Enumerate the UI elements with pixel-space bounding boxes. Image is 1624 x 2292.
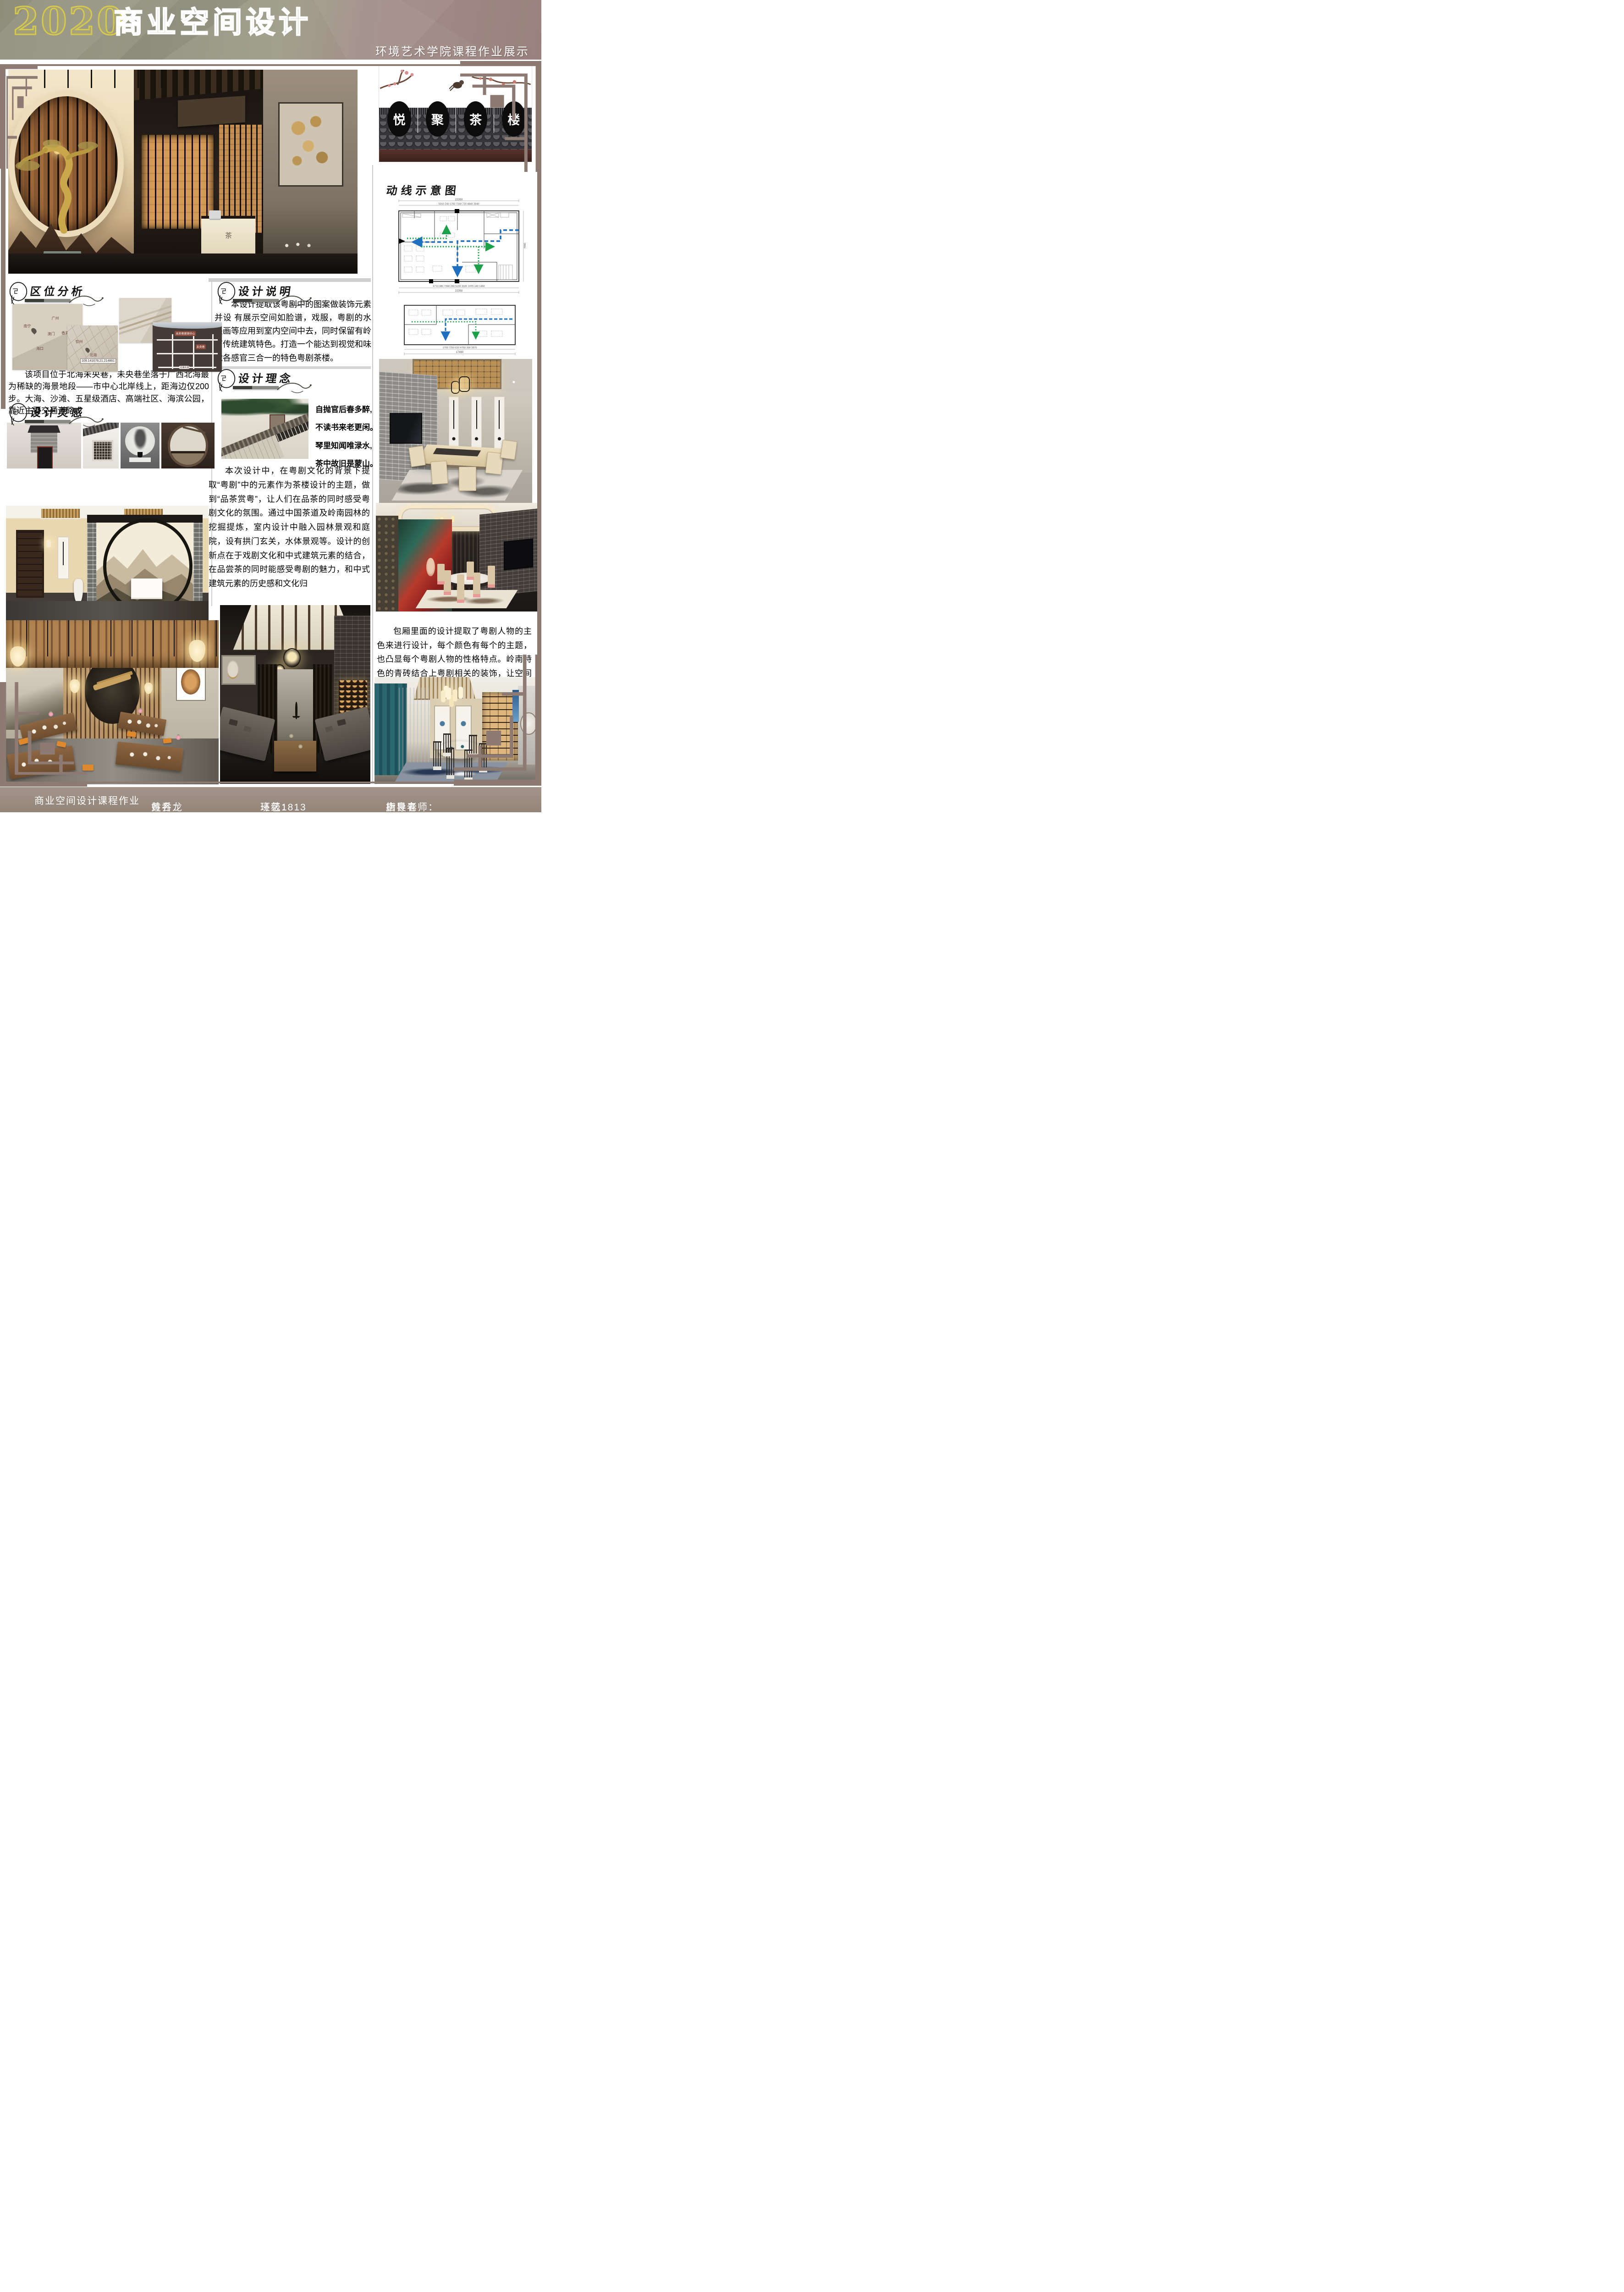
tv-screen [504, 538, 533, 570]
ming-chair [437, 564, 445, 584]
entry-corridor: 茶 [134, 70, 263, 274]
cylinder-pendant-lamps [446, 688, 451, 700]
ming-chair [488, 566, 495, 587]
desktop-computer [209, 210, 221, 219]
svg-text:5010 240 1700 7160 720 48: 5010 240 1700 7160 720 4840 2840 [439, 203, 479, 206]
render-grey-tea-room [379, 359, 532, 505]
map-coordinates: 109.141678,21.214861 [80, 358, 116, 364]
inspiration-photo-moon-gate [161, 423, 215, 468]
ornament-circle-icon [8, 402, 28, 427]
round-artwork [176, 663, 205, 701]
poem-line: 琴里知闻唯渌水, [315, 437, 371, 455]
ming-chair [457, 574, 464, 603]
fret-corner-icon [460, 61, 541, 172]
description-section-header: 设计说明 [216, 282, 322, 308]
logo-separator [418, 104, 418, 133]
ornament-circle-icon [216, 369, 237, 393]
map-road [157, 339, 218, 341]
ink-scroll-painting [471, 397, 482, 450]
concept-section-header: 设计理念 [216, 369, 322, 395]
table-flowers [176, 735, 181, 740]
plant-silhouette [132, 429, 148, 452]
section-underline [233, 386, 279, 389]
moon-arch [103, 518, 193, 613]
right-column-divider [372, 165, 373, 782]
opera-face [426, 558, 435, 576]
render-moon-gate-hall [6, 506, 209, 620]
entry-side-wall [263, 70, 358, 274]
poem-line: 自抛官后春多醉, [315, 401, 371, 419]
flourish-icon [276, 380, 313, 395]
map-road [172, 334, 173, 369]
ming-chair [467, 562, 474, 580]
section-underline [25, 299, 71, 302]
tea-console-table [131, 579, 162, 598]
chair [459, 467, 477, 491]
backlit-mural [277, 669, 314, 750]
svg-text:6710 380 7390 280 5100 10: 6710 380 7390 280 5100 1020 1070 140 146… [433, 285, 484, 288]
spindle-chair [443, 733, 451, 756]
table-flowers [138, 709, 143, 713]
orange-cushion [163, 738, 172, 744]
floor-plan-2: 1700 7250 610 4760 300 2870 17490 [395, 299, 524, 356]
flourish-icon [276, 293, 313, 308]
fabric-lantern [144, 683, 153, 694]
svg-text:17490: 17490 [456, 351, 464, 354]
map-weiyang-lane: 未央巷营销中心 未央巷 北海大道 [153, 322, 222, 372]
wall-artwork [221, 655, 256, 685]
spindle-chair [433, 741, 441, 771]
chair [501, 440, 517, 460]
footer-class-value: 环艺1813 [260, 800, 307, 812]
tv-screen [390, 413, 422, 444]
concept-photo-stairs [221, 399, 308, 459]
display-table [129, 457, 151, 462]
map-shore [153, 322, 222, 329]
sheer-curtain [399, 688, 430, 771]
map-roads [67, 325, 118, 372]
theme-paragraph: 本次设计中，在粤剧文化的背景下提取“粤剧”中的元素作为茶楼设计的主题，做到“品茶… [209, 464, 370, 591]
svg-text:22350: 22350 [455, 198, 463, 201]
pendant-rods [6, 620, 219, 656]
logo-char-badge: 悦 [387, 101, 411, 137]
header-banner: 2020 商业空间设计 环境艺术学院课程作业展示 [0, 0, 541, 60]
table-plant [298, 744, 303, 749]
brick-column [87, 515, 96, 611]
flourish-icon [68, 293, 105, 308]
long-tea-table [274, 741, 316, 771]
floor-plan-1: 22350 5010 240 1700 7160 720 4840 2840 [389, 198, 527, 295]
flourish-icon [68, 414, 105, 429]
inspiration-section-header: 设计灵感 [8, 403, 114, 429]
wood-plaque [178, 96, 245, 127]
map-pin-icon [30, 327, 38, 334]
svg-text:1700 7250 610 4760 300 28: 1700 7250 610 4760 300 2870 [443, 347, 477, 349]
cowhide-rug [415, 590, 517, 608]
page-subtitle: 环境艺术学院课程作业展示 [375, 43, 529, 59]
wall-sconce [46, 540, 51, 547]
chair [408, 446, 426, 467]
map-beihai: 钦州 北海 109.141678,21.214861 [67, 325, 118, 372]
lattice-window [92, 440, 113, 461]
gate-door [37, 446, 52, 468]
pattern-panel [376, 516, 398, 612]
ornament-circle-icon [8, 281, 28, 306]
circulation-section-title: 动线示意图 [385, 182, 461, 198]
ceiling-grill [40, 508, 81, 519]
birdcage-lamp [459, 376, 470, 392]
bonsai-pot [138, 452, 142, 457]
page-title: 商业空间设计 [114, 8, 312, 38]
svg-text:7900: 7900 [524, 243, 527, 248]
fret-corner-icon [454, 655, 541, 786]
table-plant [289, 734, 293, 738]
brick-column [193, 515, 203, 611]
logo-separator [456, 104, 456, 133]
desk-tea-character: 茶 [225, 231, 232, 240]
footer-course: 商业空间设计课程作业 [34, 793, 140, 807]
ink-splash-rug [391, 470, 523, 501]
logo-char-badge: 聚 [426, 101, 450, 137]
track-lights [22, 70, 204, 88]
header-year: 2020 [13, 3, 125, 40]
poster-page: 2020 商业空间设计 环境艺术学院课程作业展示 茶 [0, 0, 541, 812]
svg-text:22350: 22350 [455, 290, 463, 292]
dark-floor [8, 253, 358, 274]
tea-display-shelf [142, 135, 214, 229]
railing [171, 451, 205, 453]
wood-door [16, 530, 44, 598]
map-road [193, 332, 194, 369]
poem-line: 不读书来老更闲。 [315, 419, 371, 436]
cage-pendant-lamp [283, 648, 301, 667]
marble-floor [6, 601, 209, 621]
footer-name-value: 黄乔龙 [151, 800, 183, 812]
scroll-painting [58, 537, 69, 579]
ornament-circle-icon [216, 281, 237, 306]
fret-corner-icon [0, 64, 38, 169]
footer-bar: 商业空间设计课程作业 姓名：黄乔龙 班级：环艺1813 指导老师：唐良春 [0, 787, 541, 812]
ming-chair [473, 573, 480, 598]
section-underline [25, 420, 71, 423]
ink-scroll-painting [449, 397, 459, 450]
footer-teacher-value: 唐良春 [386, 800, 418, 812]
ming-chair [444, 570, 451, 595]
map-road [157, 353, 218, 354]
white-vase [74, 579, 83, 603]
concept-poem: 自抛官后春多醉, 不读书来老更闲。 琴里知闻唯渌水, 茶中故旧是蒙山。 [315, 401, 371, 473]
section-underline [233, 299, 279, 302]
chair [430, 460, 448, 484]
render-opera-room [376, 503, 538, 612]
inspiration-photo-moon-screen [121, 423, 160, 468]
fret-corner-icon [0, 682, 87, 787]
inspiration-photo-gatehouse [7, 423, 81, 468]
inspiration-photo-lattice-window [83, 423, 119, 468]
map-road [212, 334, 214, 369]
foliage [221, 399, 308, 419]
render-dark-lounge [220, 605, 370, 784]
wall-art-frame [278, 102, 343, 187]
feature-wall [87, 515, 203, 611]
render-entry-hall: 茶 [8, 70, 358, 274]
location-section-header: 区位分析 [8, 282, 114, 308]
